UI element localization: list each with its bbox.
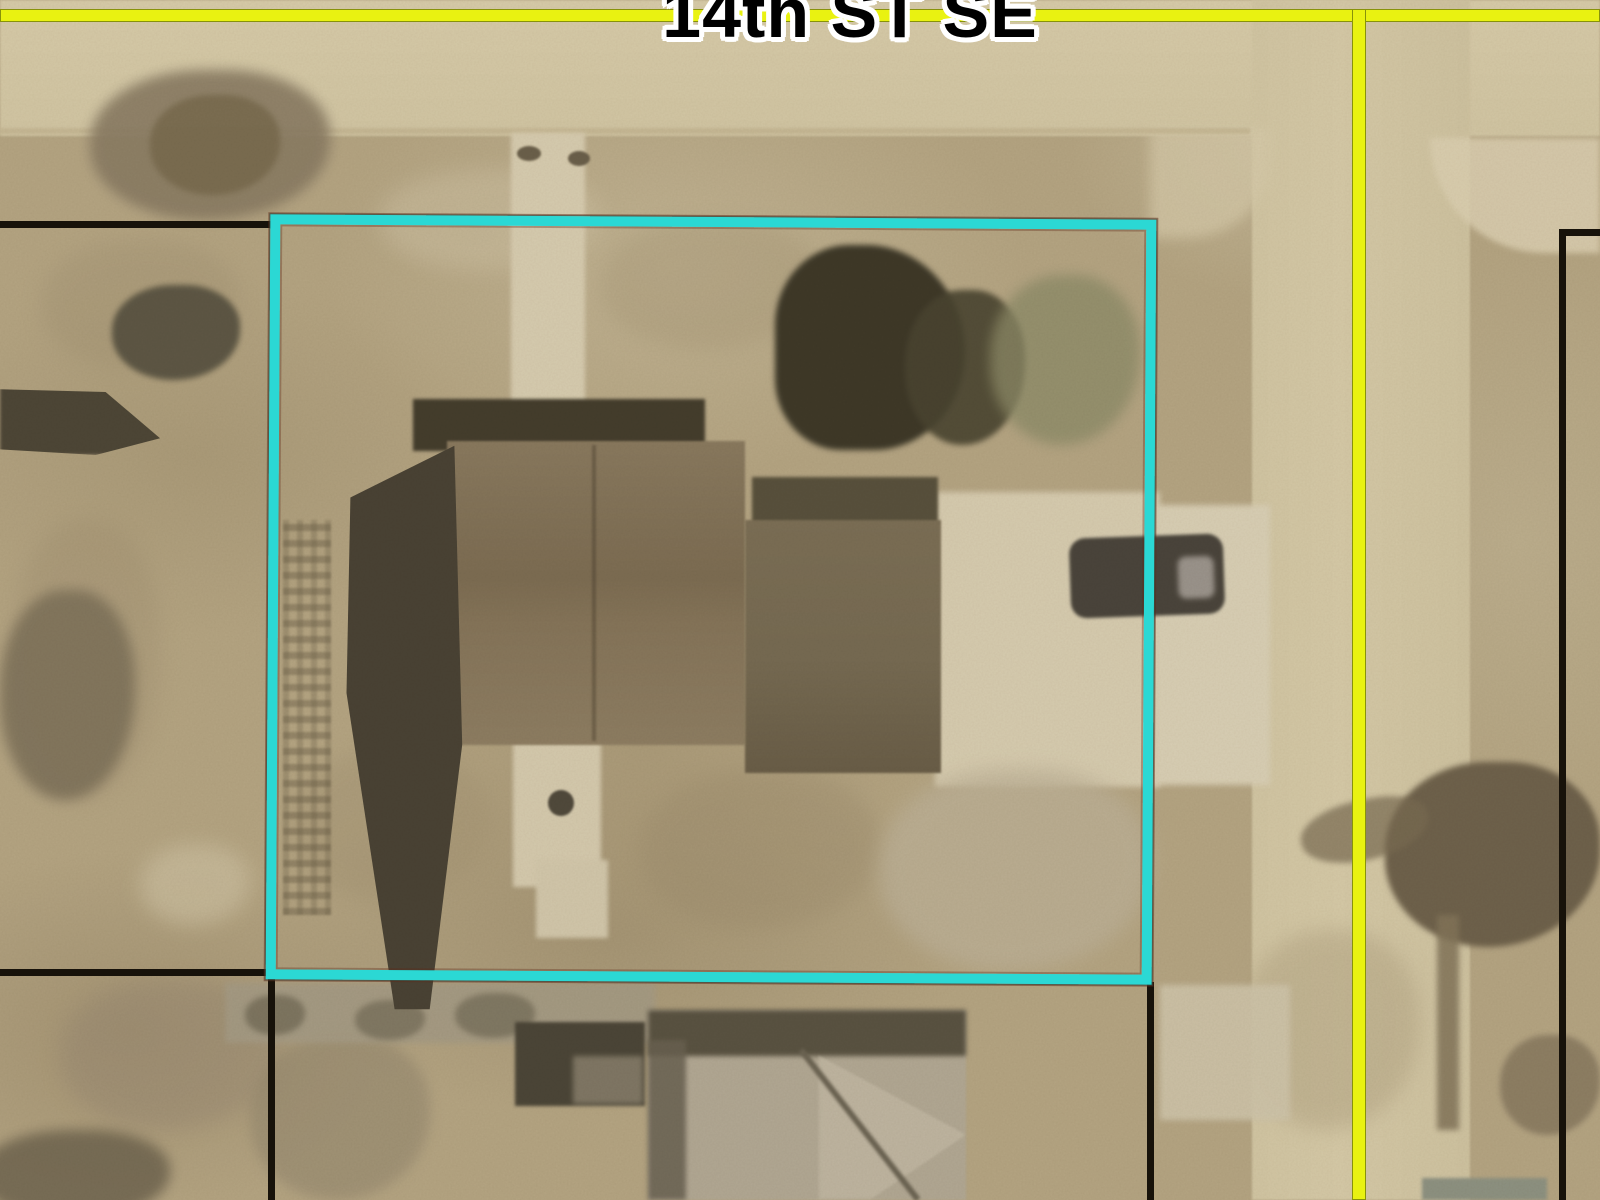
shed-roof — [515, 1022, 645, 1106]
parcel-boundary-line-south-right — [1147, 982, 1154, 1200]
tree-shadow-branch — [1500, 1035, 1600, 1135]
parcel-map-viewport[interactable]: 14th ST SE — [0, 0, 1600, 1200]
south-house-roof-face — [818, 1055, 966, 1200]
foliage — [0, 1130, 170, 1200]
car-windshield-highlight — [1177, 556, 1214, 599]
patio-south-east — [1160, 985, 1290, 1120]
far-south-roof — [1422, 1178, 1547, 1200]
south-house-ridge-north — [648, 1010, 966, 1056]
shed-roof-light-face — [573, 1056, 643, 1104]
south-house-roof — [648, 1010, 966, 1200]
ground-patch — [140, 845, 250, 925]
parcel-boundary-line-east-horizontal — [1559, 229, 1600, 236]
driveway-marking — [568, 151, 590, 166]
parcel-boundary-line-east-vertical — [1559, 229, 1566, 1200]
south-house-edge-west — [648, 1040, 686, 1200]
selected-parcel-outline[interactable] — [266, 214, 1157, 984]
street-centerline-vertical — [1352, 9, 1366, 1200]
parcel-boundary-line-west-top — [0, 221, 272, 228]
tree-shadow-trunk — [1437, 915, 1459, 1130]
tree-shadow-on-road — [1385, 762, 1600, 947]
parcel-boundary-line-west-bottom — [0, 969, 272, 976]
tree-canopy — [250, 1035, 430, 1200]
shrub — [112, 285, 240, 380]
street-label: 14th ST SE — [662, 0, 1038, 48]
neighbor-roof-edge — [0, 385, 165, 455]
parcel-boundary-line-south-left — [268, 975, 275, 1200]
driveway-marking — [517, 146, 541, 161]
